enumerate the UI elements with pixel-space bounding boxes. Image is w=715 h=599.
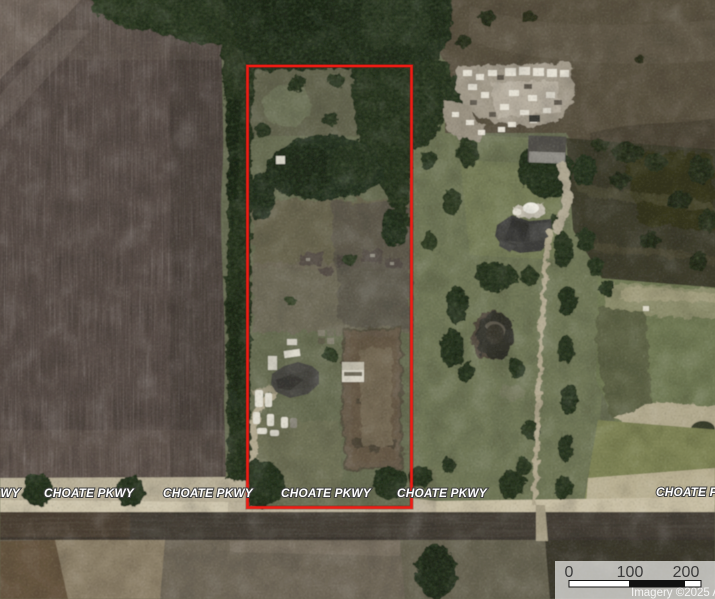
svg-text:100: 100 bbox=[617, 564, 644, 581]
svg-text:CHOATE PKWY: CHOATE PKWY bbox=[281, 486, 372, 500]
svg-text:0: 0 bbox=[565, 564, 574, 581]
svg-text:CHOATE PKWY: CHOATE PKWY bbox=[0, 486, 21, 500]
svg-text:200: 200 bbox=[673, 564, 700, 581]
svg-text:Imagery ©2025 Airbus: Imagery ©2025 Airbus bbox=[631, 587, 715, 599]
svg-text:CHOATE PKWY: CHOATE PKWY bbox=[44, 486, 135, 500]
svg-text:CHOATE PKWY: CHOATE PKWY bbox=[163, 486, 254, 500]
svg-text:CHOATE PKWY: CHOATE PKWY bbox=[656, 485, 715, 499]
svg-text:CHOATE PKWY: CHOATE PKWY bbox=[397, 486, 488, 500]
